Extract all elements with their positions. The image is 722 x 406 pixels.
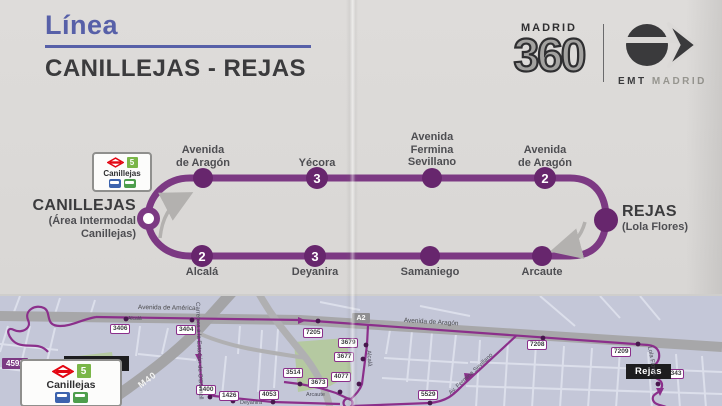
stop-dot-deyanira: 3 (304, 245, 326, 267)
stop-label: Alcalá (186, 266, 218, 279)
street-label-arcaute: Arcaute (306, 392, 325, 398)
badge-station-name: Canillejas (103, 169, 140, 178)
zone-number: 2 (541, 171, 548, 186)
metro-line-5-icon: 5 (77, 364, 91, 378)
stop-dot-avenida-de-aragon-2: 2 (534, 167, 556, 189)
line-poster: Línea CANILLEJAS - REJAS MADRID 360 EMT … (0, 0, 722, 406)
zone-number: 3 (313, 171, 320, 186)
map-stop-code: 3514 (283, 368, 303, 378)
interchange-bus-icon (55, 392, 70, 403)
zone-number: 3 (311, 249, 318, 264)
map-stop-code: 3673 (308, 378, 328, 388)
badge-station-name: Canillejas (46, 379, 95, 391)
stop-dot-yecora: 3 (306, 167, 328, 189)
stop-dot-fermina-sevillano (422, 168, 442, 188)
route-loop-path (148, 178, 606, 256)
map-stop-code: 4077 (331, 372, 351, 382)
map-stop-code: 7208 (527, 340, 547, 350)
stop-dot-alcala: 2 (191, 245, 213, 267)
destination-name: REJAS (622, 203, 688, 221)
route-loop-diagram (0, 0, 722, 296)
zone-number: 2 (198, 249, 205, 264)
road-label-avenida-america: Avenida de América (138, 304, 196, 312)
metro-line-5-icon: 5 (127, 157, 138, 168)
origin-terminal-label: CANILLEJAS (Área Intermodal Canillejas) (0, 197, 136, 241)
street-label-deyanira: Deyanira (240, 400, 262, 406)
metro-madrid-icon (107, 157, 124, 168)
map-stop-code: 7209 (611, 347, 631, 357)
destination-terminal-label: REJAS (Lola Flores) (622, 203, 688, 234)
stop-label: Avenidade Aragón (518, 144, 572, 169)
map-stop-code: 1426 (219, 391, 239, 401)
map-stop-code: 4053 (259, 390, 279, 400)
road-label-a2: A2 (352, 313, 370, 323)
map-stop-code: 3679 (338, 338, 358, 348)
interurban-bus-icon (124, 179, 136, 188)
origin-sub1: (Área Intermodal (0, 215, 136, 228)
map-stop-code: 5529 (418, 390, 438, 400)
stop-label: Avenidade Aragón (176, 144, 230, 169)
stop-dot-rejas (594, 208, 618, 232)
stop-label: Yécora (299, 157, 336, 170)
stop-dot-samaniego (420, 246, 440, 266)
metro-madrid-icon (52, 365, 74, 378)
stop-label: Deyanira (292, 266, 338, 279)
map-destination-label: Rejas (626, 364, 671, 379)
direction-arrow-start (160, 197, 184, 238)
metro-interchange-badge: 5 Canillejas (92, 152, 152, 192)
interchange-bus-icon (109, 179, 121, 188)
direction-arrow-end (560, 222, 585, 249)
origin-name: CANILLEJAS (0, 197, 136, 215)
street-label-alcala-small: Alcalá (128, 316, 142, 322)
stop-label: AvenidaFerminaSevillano (408, 131, 456, 169)
destination-sub: (Lola Flores) (622, 221, 688, 234)
map-stop-code: 7205 (303, 328, 323, 338)
map-stop-code: 3406 (110, 324, 130, 334)
terminus-ring-canillejas (137, 207, 160, 230)
map-stop-code: 3404 (176, 325, 196, 335)
stop-dot-avenida-de-aragon-1 (193, 168, 213, 188)
stop-label: Arcaute (522, 266, 563, 279)
stop-dot-arcaute (532, 246, 552, 266)
interurban-bus-icon (73, 392, 88, 403)
stop-label: Samaniego (401, 266, 460, 279)
map-stop-code: 3677 (334, 352, 354, 362)
metro-interchange-badge-map: 5 Canillejas (20, 359, 122, 406)
origin-sub2: Canillejas) (0, 228, 136, 241)
